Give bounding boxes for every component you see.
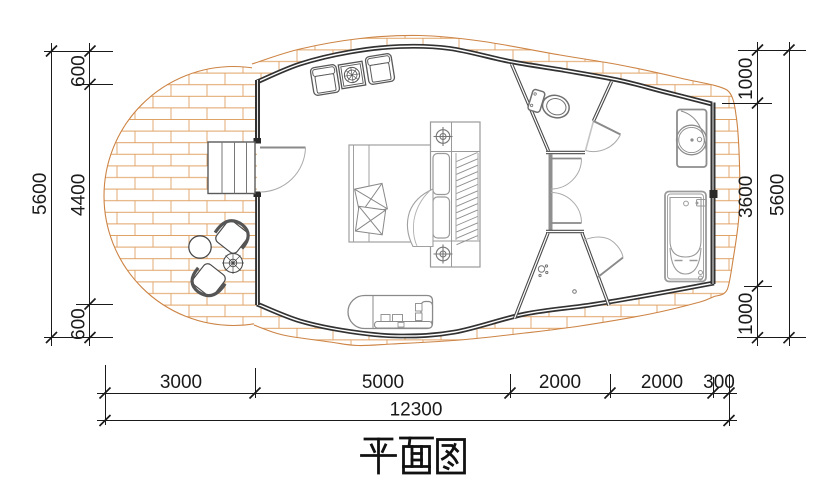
svg-text:5600: 5600 [768, 174, 789, 216]
svg-text:3600: 3600 [736, 176, 757, 218]
svg-text:2000: 2000 [641, 372, 683, 393]
svg-text:600: 600 [69, 55, 90, 87]
svg-text:1000: 1000 [736, 58, 757, 100]
svg-text:1000: 1000 [736, 293, 757, 335]
svg-text:600: 600 [69, 308, 90, 340]
svg-text:5000: 5000 [362, 372, 404, 393]
svg-text:4400: 4400 [69, 174, 90, 216]
svg-text:3000: 3000 [160, 372, 202, 393]
svg-text:5600: 5600 [30, 173, 51, 215]
svg-text:2000: 2000 [539, 372, 581, 393]
svg-text:300: 300 [703, 372, 735, 393]
svg-text:12300: 12300 [390, 400, 443, 421]
